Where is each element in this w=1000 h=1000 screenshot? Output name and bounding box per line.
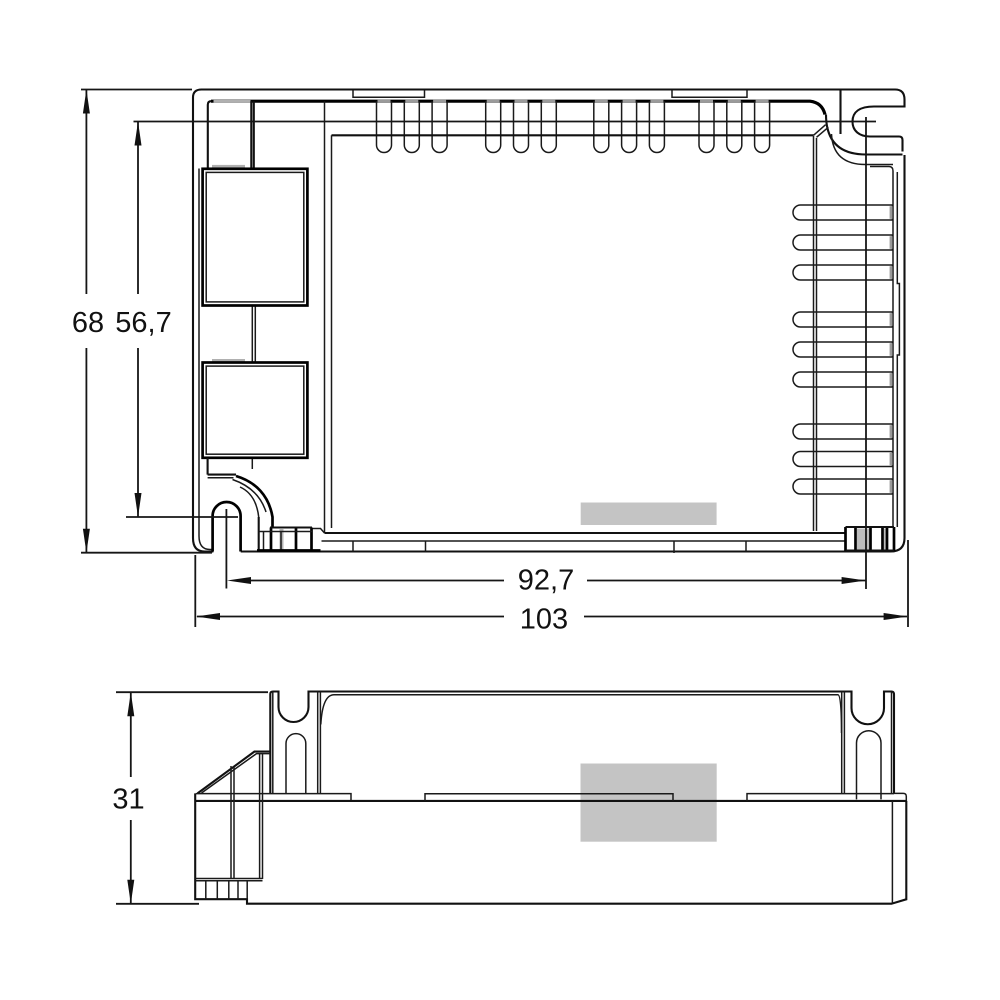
svg-text:31: 31 — [112, 784, 144, 816]
svg-text:68: 68 — [72, 307, 104, 339]
svg-text:92,7: 92,7 — [518, 565, 574, 597]
svg-text:56,7: 56,7 — [115, 307, 171, 339]
svg-text:103: 103 — [520, 604, 568, 636]
